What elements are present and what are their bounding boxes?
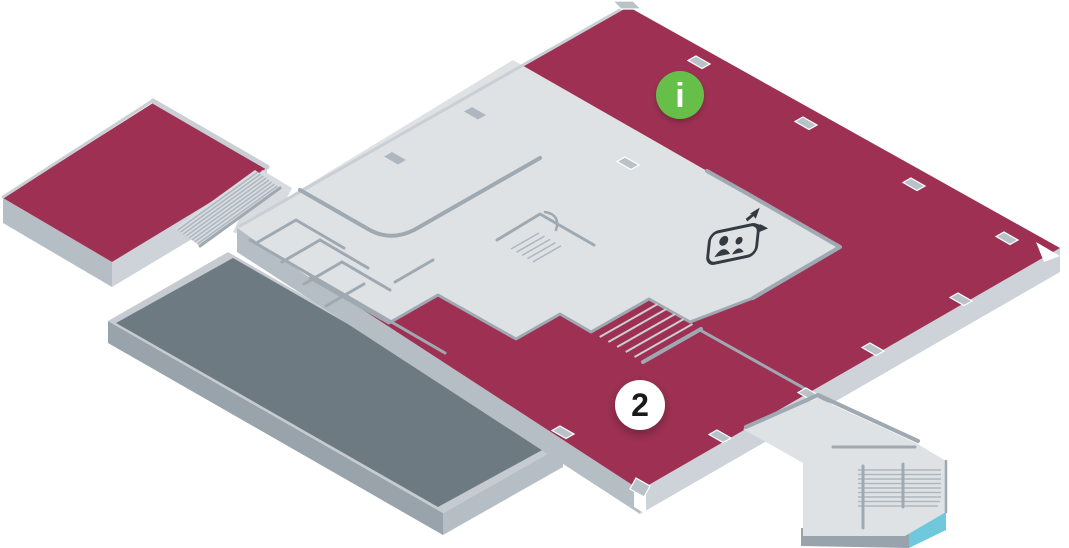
marker-information[interactable]: i: [656, 71, 704, 119]
floor-plan-svg: i 2: [0, 0, 1069, 548]
marker-floor-level[interactable]: 2: [615, 380, 665, 430]
floor-number-label: 2: [631, 387, 649, 423]
platform-floor[interactable]: [743, 398, 946, 536]
exit-stair-platform: [743, 395, 946, 548]
floor-map: i 2: [0, 0, 1069, 548]
roof-vent-top: [613, 1, 641, 9]
info-icon: i: [675, 77, 684, 115]
